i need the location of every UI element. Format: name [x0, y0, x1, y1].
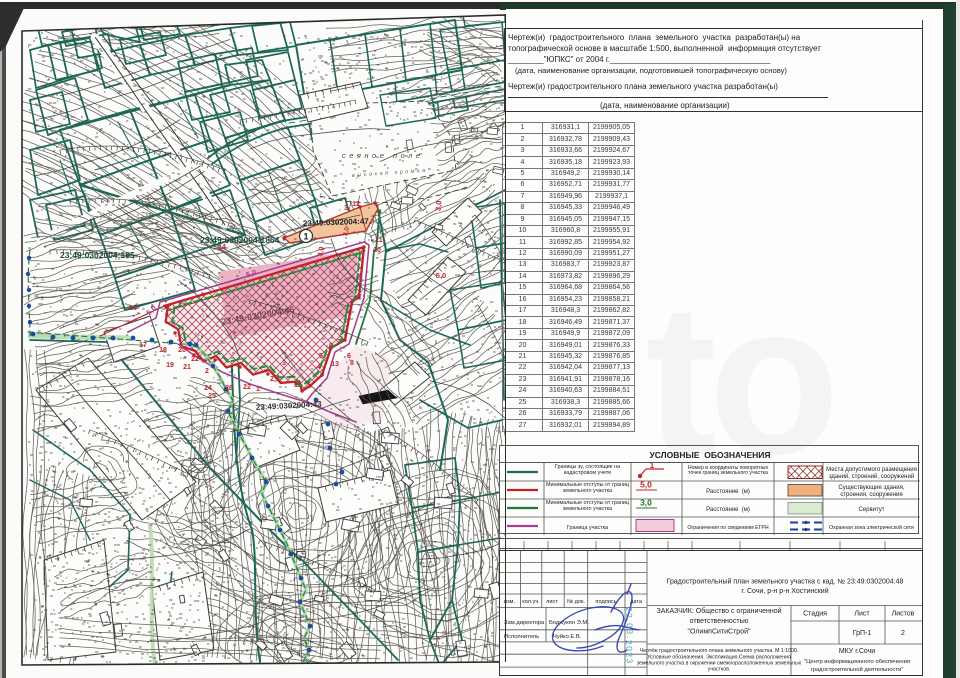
svg-text:3,0: 3,0 — [434, 200, 444, 211]
svg-text:сеяное поле: сеяное поле — [342, 151, 424, 160]
svg-text:3: 3 — [282, 360, 286, 367]
svg-text:2: 2 — [205, 368, 209, 375]
svg-text:19: 19 — [166, 362, 174, 369]
svg-text:13: 13 — [331, 361, 339, 368]
svg-text:8: 8 — [350, 360, 354, 367]
svg-text:11: 11 — [375, 237, 383, 244]
svg-text:10: 10 — [373, 247, 381, 254]
svg-text:22: 22 — [191, 356, 199, 363]
svg-text:23:49:0302004:1864: 23:49:0302004:1864 — [200, 235, 280, 245]
svg-text:3: 3 — [344, 205, 348, 212]
svg-text:23:49:0302004:185: 23:49:0302004:185 — [60, 250, 135, 260]
svg-text:6: 6 — [347, 353, 351, 360]
svg-text:2023: 2023 — [624, 640, 635, 665]
svg-text:2: 2 — [270, 376, 274, 383]
svg-text:20: 20 — [178, 347, 186, 354]
svg-text:22.03.: 22.03. — [624, 607, 635, 640]
svg-text:4: 4 — [317, 364, 321, 371]
svg-text:1: 1 — [303, 232, 308, 242]
svg-text:24: 24 — [204, 385, 212, 392]
svg-text:21: 21 — [183, 364, 191, 371]
svg-text:26: 26 — [225, 385, 233, 392]
svg-text:3,0: 3,0 — [640, 498, 652, 508]
svg-text:22: 22 — [243, 384, 251, 391]
svg-text:5,0: 5,0 — [436, 271, 446, 280]
svg-text:7: 7 — [337, 339, 341, 346]
svg-text:5: 5 — [319, 353, 323, 360]
